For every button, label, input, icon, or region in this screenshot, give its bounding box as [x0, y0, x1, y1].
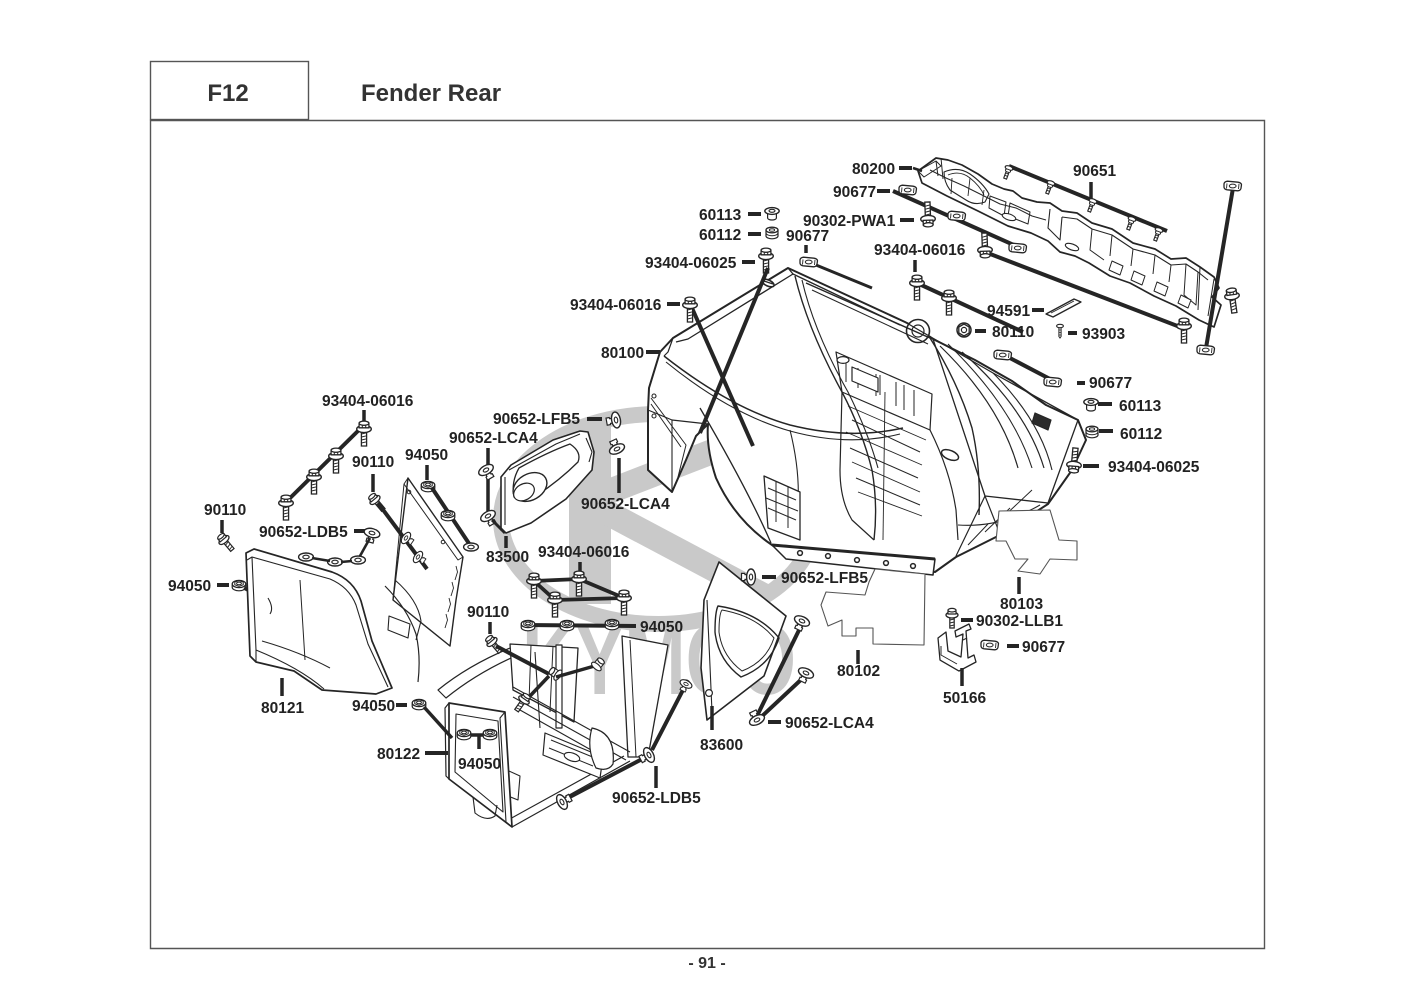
svg-text:90110: 90110: [204, 502, 246, 519]
svg-text:90652-LFB5: 90652-LFB5: [493, 411, 580, 428]
svg-text:90302-LLB1: 90302-LLB1: [976, 613, 1063, 630]
svg-text:80200: 80200: [852, 161, 895, 178]
svg-text:F12: F12: [207, 80, 248, 107]
svg-text:94050: 94050: [352, 698, 395, 715]
svg-text:80100: 80100: [601, 345, 644, 362]
svg-text:93404-06016: 93404-06016: [570, 297, 662, 314]
svg-text:90652-LDB5: 90652-LDB5: [612, 790, 701, 807]
svg-text:90677: 90677: [1089, 375, 1132, 392]
svg-text:90110: 90110: [467, 604, 509, 621]
svg-text:80110: 80110: [992, 324, 1034, 341]
svg-text:90652-LDB5: 90652-LDB5: [259, 524, 348, 541]
svg-text:93404-06016: 93404-06016: [538, 544, 630, 561]
svg-text:Fender Rear: Fender Rear: [361, 80, 501, 107]
svg-text:80102: 80102: [837, 663, 880, 680]
svg-text:90677: 90677: [786, 228, 829, 245]
svg-text:90652-LCA4: 90652-LCA4: [785, 715, 874, 732]
svg-text:94050: 94050: [640, 619, 683, 636]
svg-text:90677: 90677: [1022, 639, 1065, 656]
svg-text:60112: 60112: [1120, 426, 1162, 443]
svg-text:90652-LFB5: 90652-LFB5: [781, 570, 868, 587]
svg-text:50166: 50166: [943, 690, 986, 707]
svg-text:60113: 60113: [1119, 398, 1162, 415]
svg-text:94050: 94050: [458, 756, 501, 773]
svg-text:90652-LCA4: 90652-LCA4: [581, 496, 670, 513]
svg-text:60113: 60113: [699, 207, 742, 224]
svg-text:93903: 93903: [1082, 326, 1125, 343]
svg-text:60112: 60112: [699, 227, 741, 244]
svg-text:83600: 83600: [700, 737, 743, 754]
svg-text:93404-06025: 93404-06025: [1108, 459, 1200, 476]
svg-text:90652-LCA4: 90652-LCA4: [449, 430, 538, 447]
svg-text:80121: 80121: [261, 700, 304, 717]
svg-text:80122: 80122: [377, 746, 420, 763]
svg-text:90110: 90110: [352, 454, 394, 471]
svg-text:- 91 -: - 91 -: [688, 955, 725, 972]
svg-text:80103: 80103: [1000, 596, 1043, 613]
svg-text:93404-06016: 93404-06016: [874, 242, 966, 259]
svg-text:93404-06016: 93404-06016: [322, 393, 414, 410]
svg-text:93404-06025: 93404-06025: [645, 255, 737, 272]
svg-text:94050: 94050: [405, 447, 448, 464]
svg-text:90677: 90677: [833, 184, 876, 201]
svg-text:94050: 94050: [168, 578, 211, 595]
svg-text:94591: 94591: [987, 303, 1030, 320]
svg-text:90651: 90651: [1073, 163, 1116, 180]
svg-text:83500: 83500: [486, 549, 529, 566]
